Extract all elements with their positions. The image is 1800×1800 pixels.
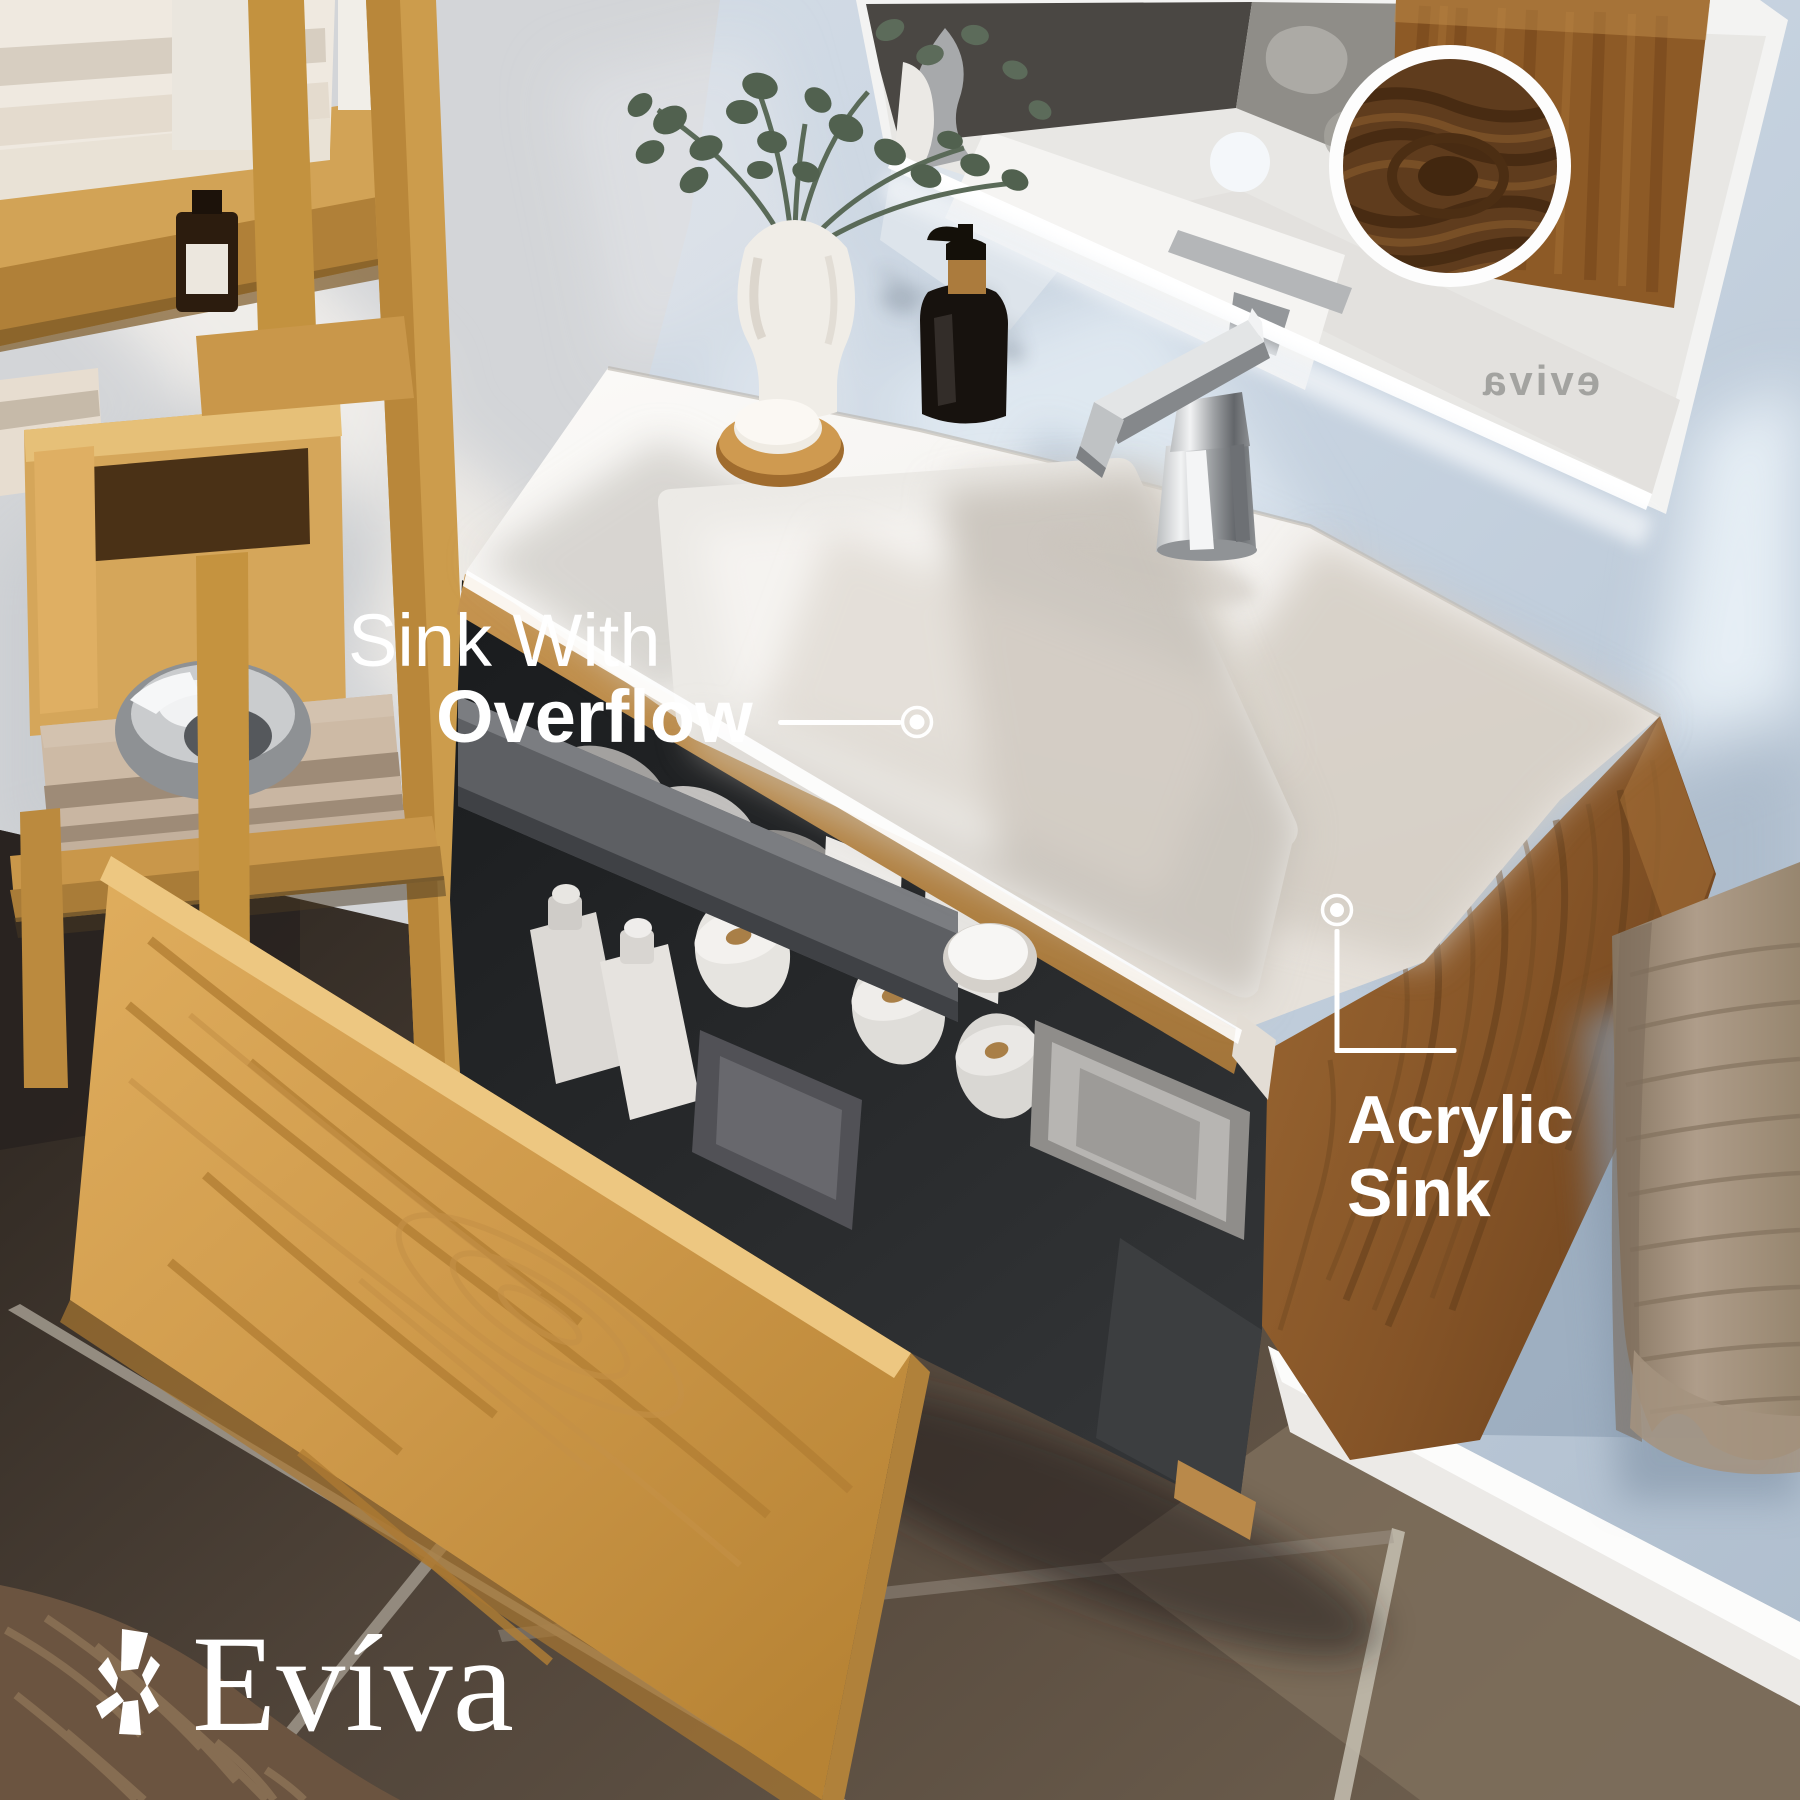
svg-text:Acrylic: Acrylic (1347, 1082, 1574, 1158)
svg-text:Evíva: Evíva (192, 1607, 514, 1760)
svg-text:Overflow: Overflow (436, 675, 753, 758)
svg-text:Sink: Sink (1347, 1155, 1491, 1231)
svg-text:Sink With: Sink With (348, 599, 661, 682)
svg-text:eviva: eviva (1480, 357, 1600, 404)
